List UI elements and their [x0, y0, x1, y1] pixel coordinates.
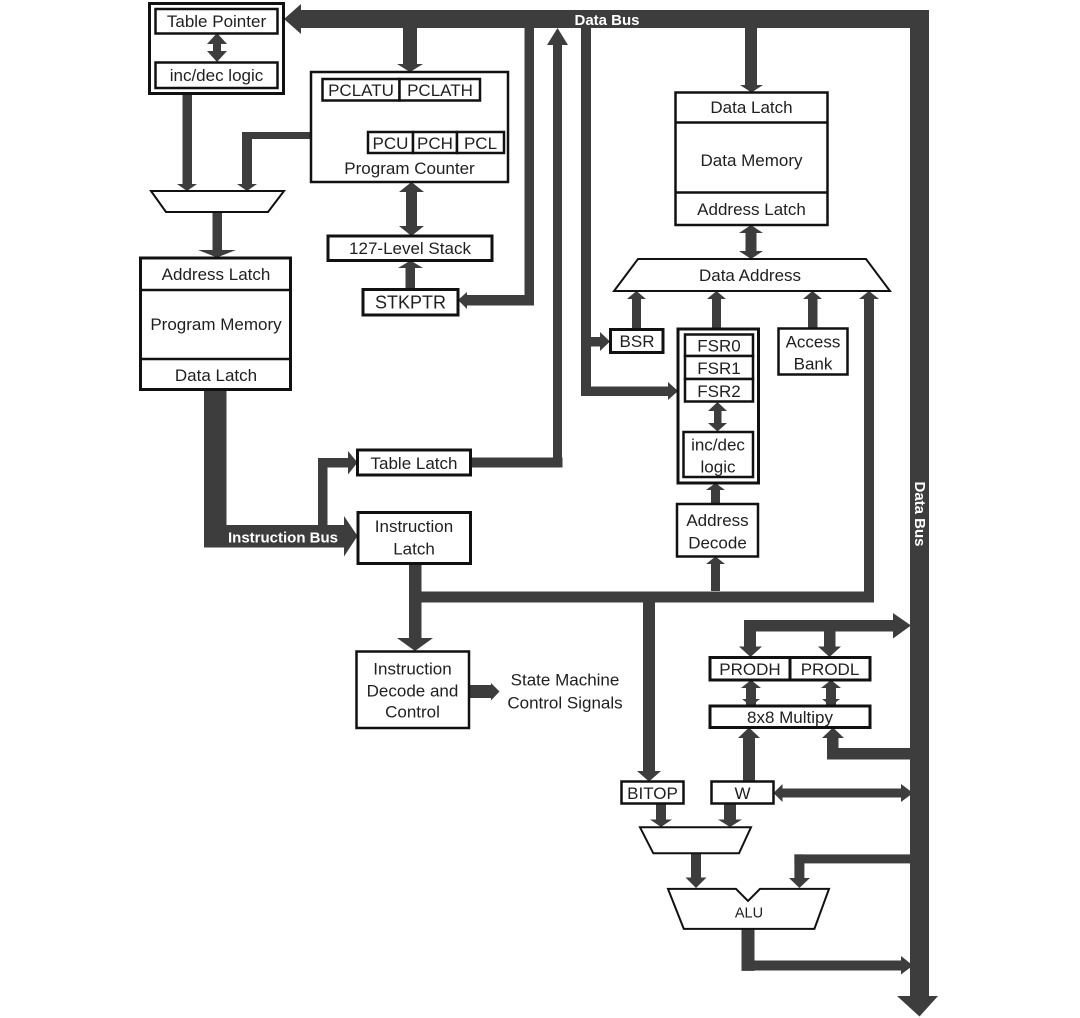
svg-text:Address Latch: Address Latch	[162, 265, 271, 284]
svg-text:Bank: Bank	[794, 355, 833, 374]
svg-text:Table Latch: Table Latch	[371, 454, 458, 473]
svg-text:Instruction Bus: Instruction Bus	[228, 530, 338, 547]
svg-text:PRODH: PRODH	[719, 660, 780, 679]
svg-text:State Machine: State Machine	[511, 671, 620, 690]
svg-text:inc/dec logic: inc/dec logic	[170, 66, 264, 85]
svg-text:PCH: PCH	[417, 134, 453, 153]
svg-text:BITOP: BITOP	[627, 784, 678, 803]
svg-text:PCLATU: PCLATU	[328, 81, 394, 100]
svg-text:FSR0: FSR0	[697, 337, 740, 356]
svg-text:Data Address: Data Address	[699, 266, 801, 285]
svg-text:inc/dec: inc/dec	[691, 436, 745, 455]
svg-text:Address: Address	[686, 511, 748, 530]
svg-text:Program Counter: Program Counter	[344, 159, 475, 178]
svg-text:Latch: Latch	[393, 540, 435, 559]
svg-text:BSR: BSR	[620, 332, 655, 351]
svg-text:Address Latch: Address Latch	[697, 200, 806, 219]
svg-text:Control: Control	[385, 703, 440, 722]
svg-text:Decode and: Decode and	[367, 682, 459, 701]
svg-text:Data Memory: Data Memory	[700, 151, 803, 170]
svg-text:Instruction: Instruction	[373, 660, 451, 679]
svg-text:logic: logic	[701, 458, 736, 477]
svg-text:Control Signals: Control Signals	[507, 694, 622, 713]
svg-text:Table Pointer: Table Pointer	[167, 12, 267, 31]
svg-text:PCL: PCL	[464, 134, 497, 153]
svg-text:Program Memory: Program Memory	[150, 315, 282, 334]
svg-text:PRODL: PRODL	[801, 660, 860, 679]
svg-text:Access: Access	[786, 333, 841, 352]
svg-text:W: W	[734, 784, 750, 803]
svg-text:Data Latch: Data Latch	[175, 366, 257, 385]
svg-text:127-Level Stack: 127-Level Stack	[349, 239, 471, 258]
svg-text:Data Bus: Data Bus	[574, 12, 639, 29]
svg-text:Decode: Decode	[688, 534, 747, 553]
svg-text:Data Bus: Data Bus	[911, 481, 928, 546]
svg-text:Instruction: Instruction	[375, 517, 453, 536]
svg-text:8x8 Multipy: 8x8 Multipy	[747, 708, 833, 727]
svg-text:ALU: ALU	[735, 906, 763, 922]
svg-text:Data Latch: Data Latch	[710, 98, 792, 117]
svg-text:FSR2: FSR2	[697, 382, 740, 401]
svg-text:FSR1: FSR1	[697, 359, 740, 378]
svg-text:PCLATH: PCLATH	[407, 81, 473, 100]
svg-text:STKPTR: STKPTR	[375, 293, 446, 313]
svg-text:PCU: PCU	[373, 134, 409, 153]
